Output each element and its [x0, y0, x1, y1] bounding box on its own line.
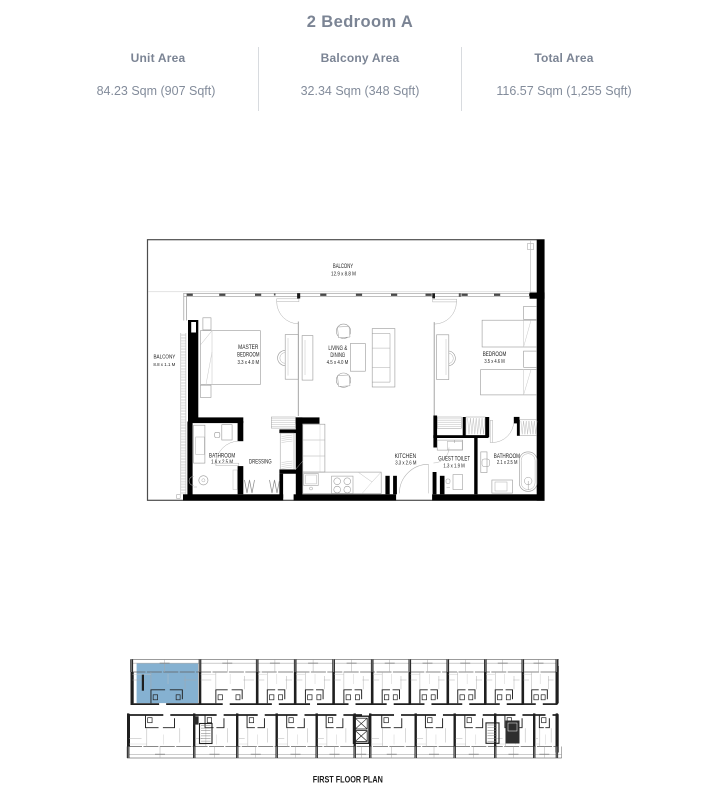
svg-text:FIRST FLOOR PLAN: FIRST FLOOR PLAN: [313, 775, 383, 786]
